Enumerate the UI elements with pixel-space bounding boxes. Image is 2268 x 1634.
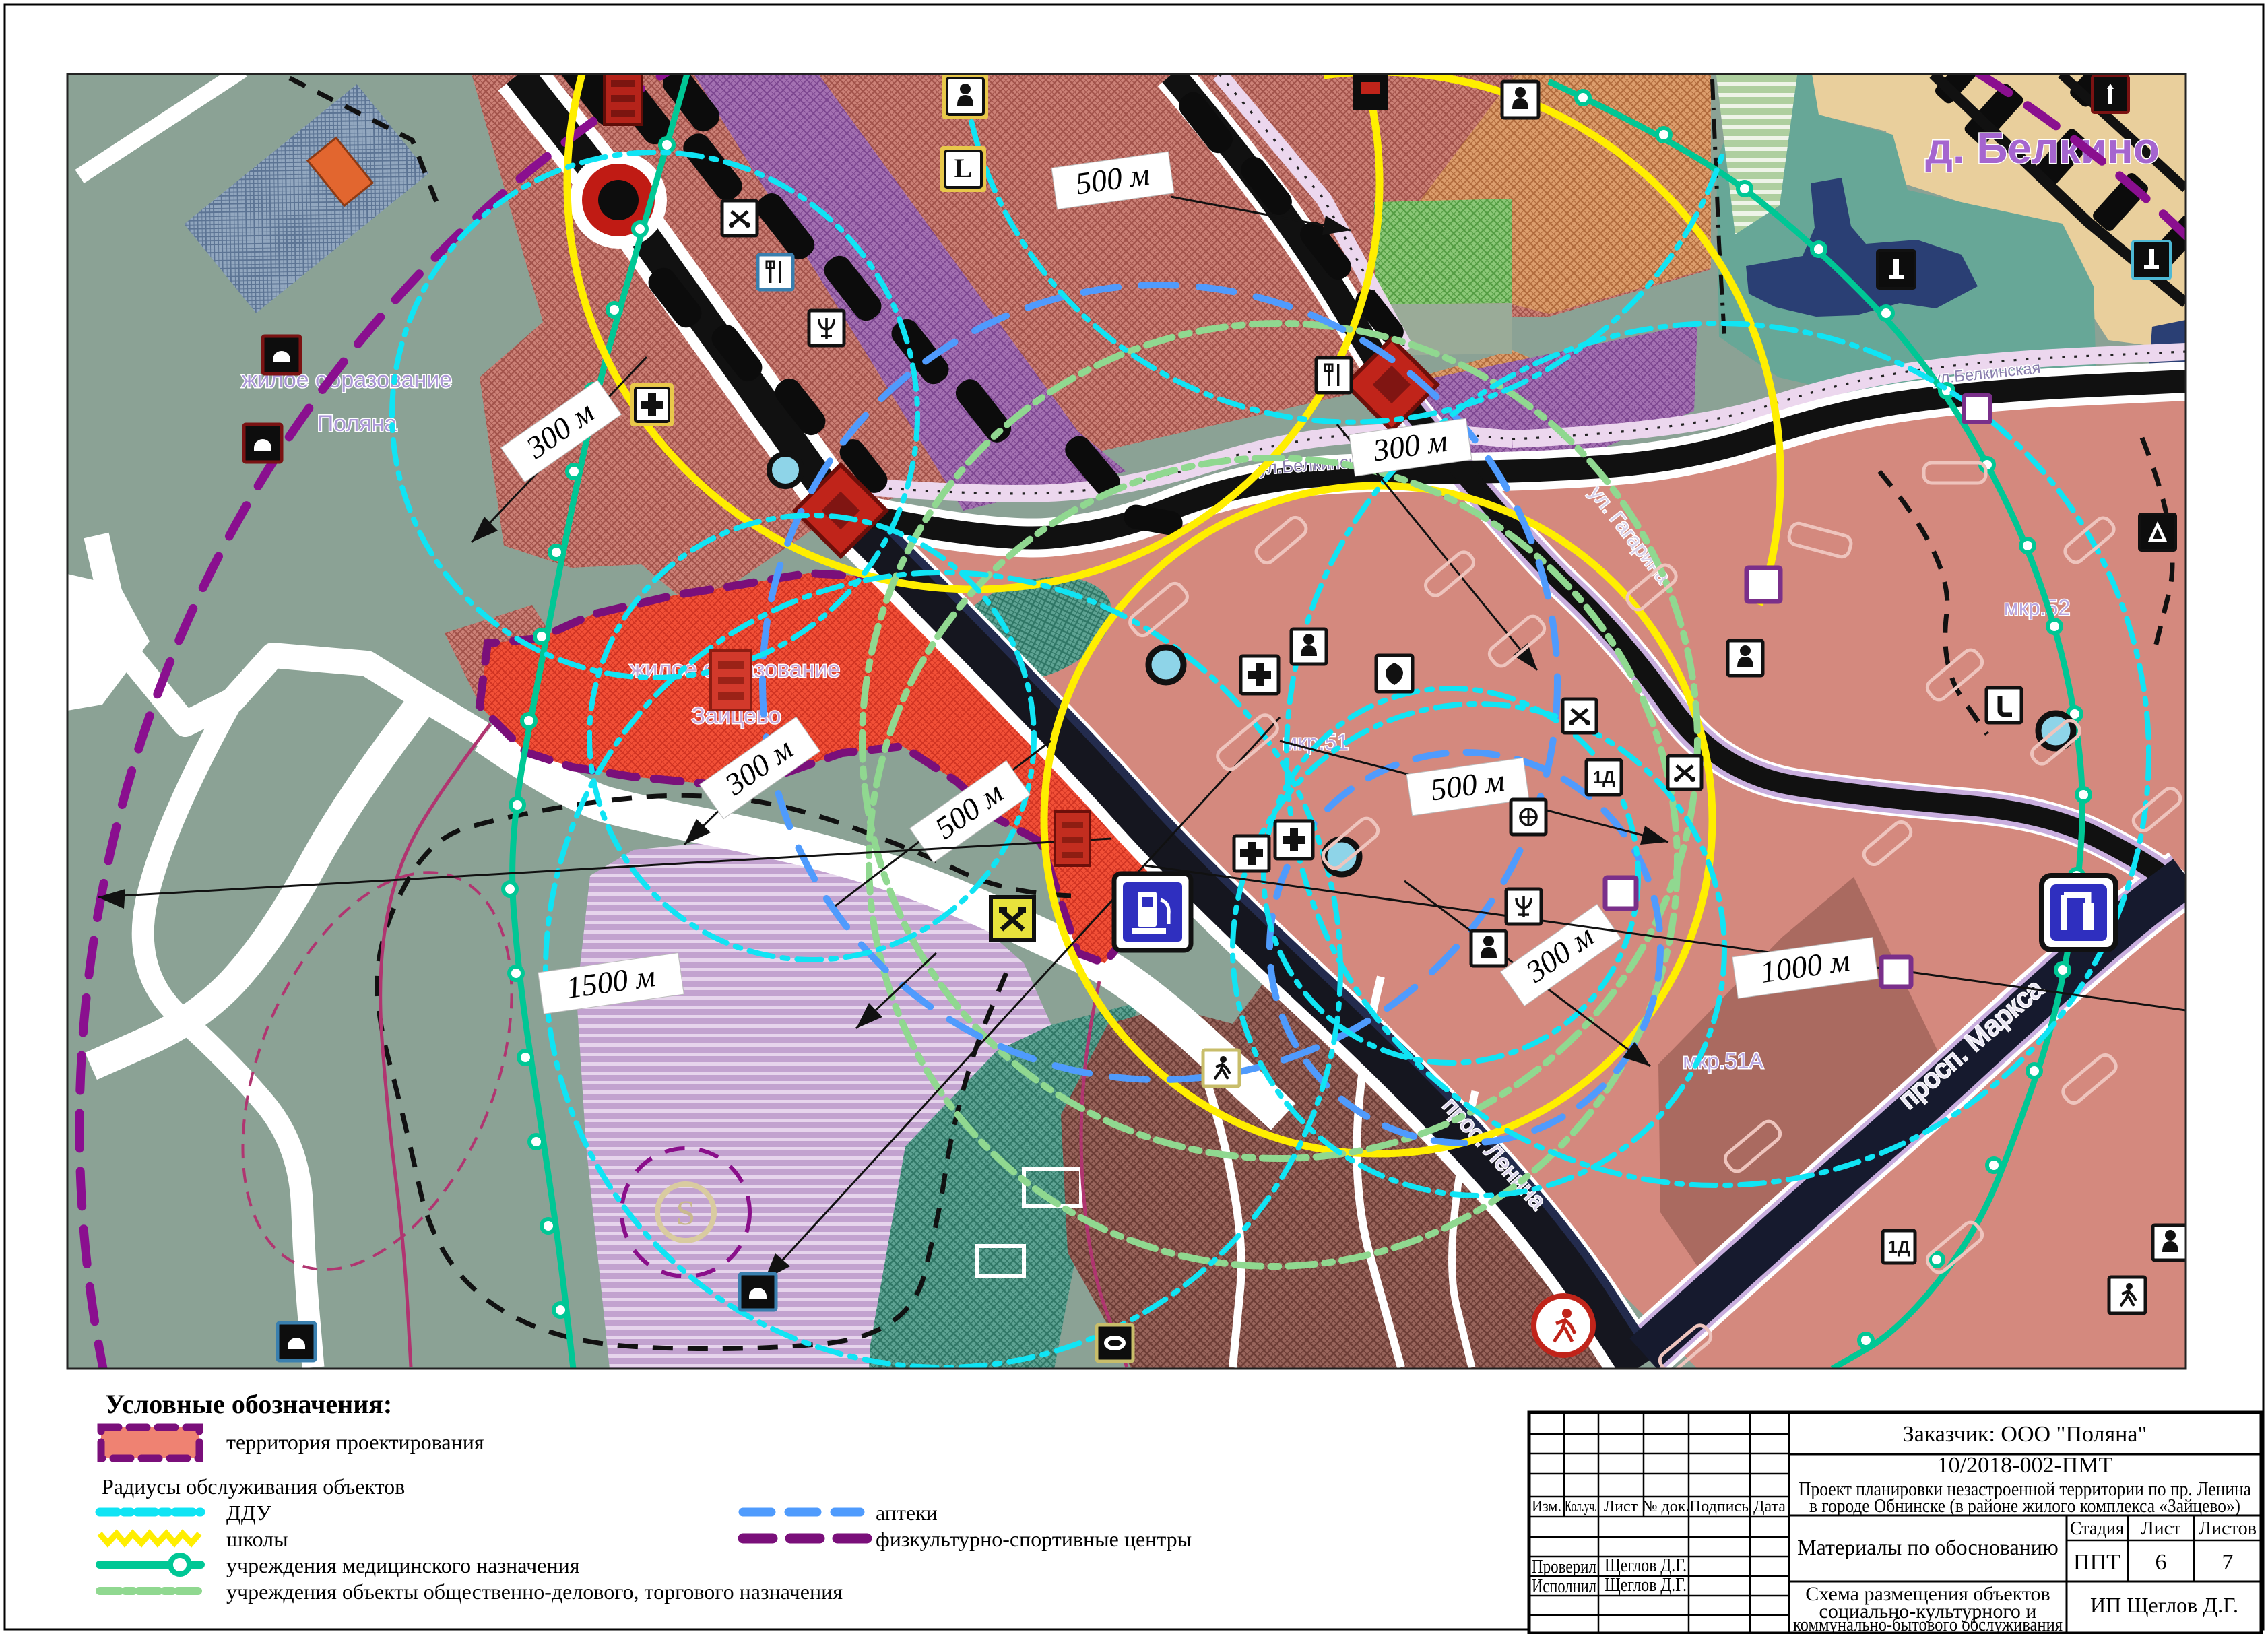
svg-text:Радиусы обслуживания объектов: Радиусы обслуживания объектов (102, 1474, 405, 1499)
svg-text:Изм.: Изм. (1532, 1498, 1561, 1515)
svg-text:Заказчик: ООО "Поляна": Заказчик: ООО "Поляна" (1903, 1422, 2147, 1447)
svg-text:Проверил: Проверил (1532, 1557, 1596, 1577)
svg-text:6: 6 (2156, 1550, 2167, 1575)
svg-text:1Д: 1Д (1593, 767, 1615, 787)
svg-text:физкультурно-спортивные центры: физкультурно-спортивные центры (876, 1527, 1192, 1551)
svg-text:ДДУ: ДДУ (226, 1501, 271, 1525)
svg-text:аптеки: аптеки (876, 1501, 938, 1525)
svg-text:ИП Щеглов Д.Г.: ИП Щеглов Д.Г. (2090, 1593, 2238, 1617)
svg-text:Лист: Лист (2141, 1518, 2181, 1539)
svg-text:Поляна: Поляна (317, 411, 397, 436)
svg-text:учреждения медицинского назна: учреждения медицинского назначения (226, 1553, 580, 1577)
svg-text:Лист: Лист (1604, 1498, 1638, 1515)
svg-text:№ док.: № док. (1642, 1498, 1690, 1515)
svg-text:Щеглов Д.Г.: Щеглов Д.Г. (1605, 1555, 1687, 1576)
svg-text:Щеглов Д.Г.: Щеглов Д.Г. (1605, 1575, 1687, 1596)
svg-text:территория проектирования: территория проектирования (226, 1430, 484, 1454)
svg-text:в городе Обнинске (в районе жи: в городе Обнинске (в районе жилого компл… (1809, 1496, 2240, 1517)
svg-text:ППТ: ППТ (2073, 1550, 2120, 1575)
svg-text:коммунально-бытового обслужива: коммунально-бытового обслуживания (1793, 1614, 2063, 1634)
svg-text:мкр.52: мкр.52 (2004, 595, 2070, 620)
svg-text:Кол.уч.: Кол.уч. (1565, 1498, 1597, 1515)
svg-text:учреждения объекты общественно: учреждения объекты общественно-делового,… (226, 1579, 843, 1604)
svg-text:7: 7 (2222, 1550, 2234, 1575)
svg-text:Исполнил: Исполнил (1532, 1576, 1596, 1597)
svg-text:Дата: Дата (1753, 1498, 1786, 1515)
svg-text:Условные обозначения:: Условные обозначения: (105, 1389, 392, 1419)
svg-text:д. Белкино: д. Белкино (1925, 124, 2160, 172)
svg-text:школы: школы (226, 1527, 288, 1551)
svg-text:Стадия: Стадия (2070, 1518, 2124, 1539)
svg-text:1Д: 1Д (1888, 1237, 1910, 1257)
svg-text:S: S (676, 1194, 696, 1233)
svg-text:10/2018-002-ПМТ: 10/2018-002-ПМТ (1937, 1453, 2113, 1478)
svg-text:Листов: Листов (2199, 1518, 2257, 1539)
svg-text:Материалы по обоснованию: Материалы по обоснованию (1797, 1535, 2059, 1559)
svg-text:Подпись: Подпись (1689, 1498, 1749, 1515)
svg-text:L: L (954, 153, 973, 183)
